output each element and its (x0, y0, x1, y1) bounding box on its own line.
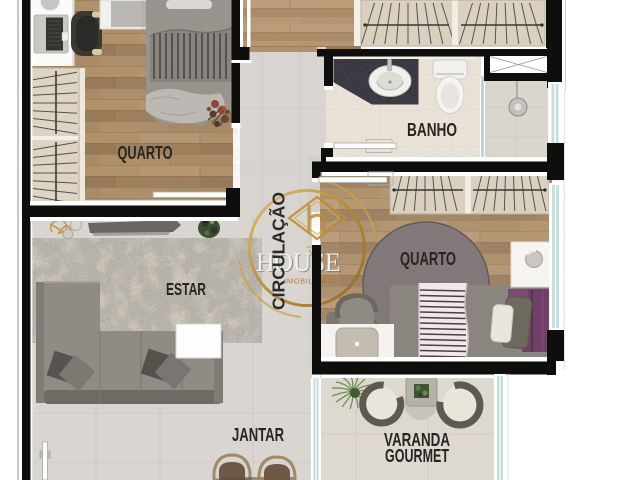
svg-text:GOURMET: GOURMET (385, 446, 449, 466)
svg-text:BANHO: BANHO (407, 120, 457, 140)
svg-text:CIRCULAÇÃO: CIRCULAÇÃO (267, 192, 289, 310)
svg-text:IMOBILIÁRIA: IMOBILIÁRIA (284, 277, 336, 286)
svg-text:QUARTO: QUARTO (118, 143, 173, 163)
svg-text:ESTAR: ESTAR (166, 279, 206, 299)
svg-text:QUARTO: QUARTO (400, 249, 456, 269)
svg-text:JANTAR: JANTAR (232, 425, 284, 445)
